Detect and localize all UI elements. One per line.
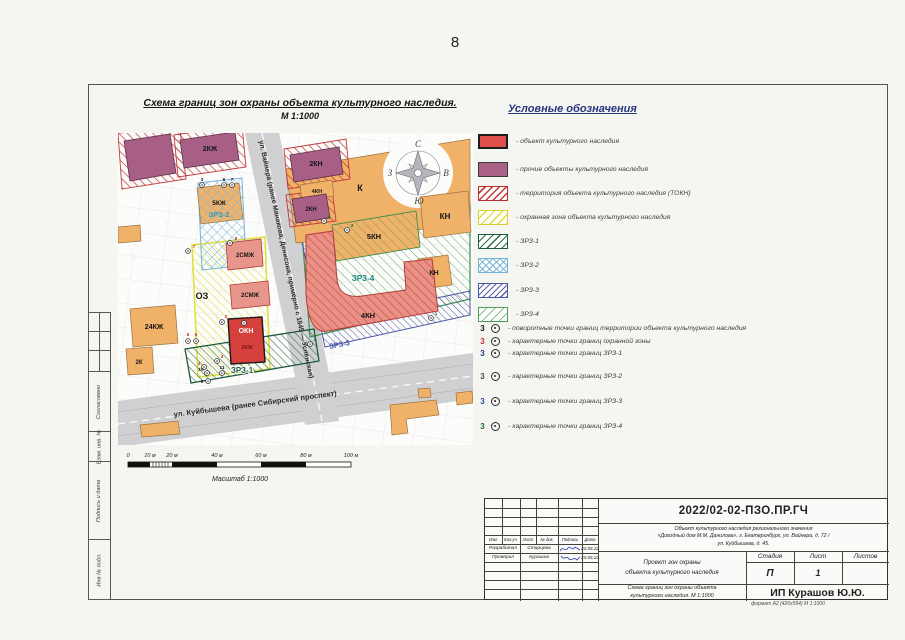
row-checker-role: Проверил <box>486 553 520 562</box>
scale-tick: 40 м <box>211 453 223 459</box>
point-num: 1 <box>435 311 438 317</box>
page-number: 8 <box>430 34 480 51</box>
swatch-other-okn <box>478 162 508 177</box>
label-24kzh: 24КЖ <box>145 324 164 331</box>
swatch-zrz3 <box>478 283 508 298</box>
point-num: 8 <box>235 236 238 242</box>
scale-bar-segments <box>128 462 351 467</box>
legend-label: - ЗРЗ-3 <box>516 287 539 294</box>
strip-box <box>99 312 111 332</box>
project-name: Проект зон охраны объекта культурного на… <box>598 551 746 584</box>
point-num: 10 <box>198 367 204 373</box>
label-zrz4: ЗРЗ-4 <box>352 274 375 283</box>
legend-label: - характерные точки границ ЗРЗ-3 <box>508 398 622 405</box>
swatch-okn <box>478 134 508 149</box>
document-number: 2022/02-02-ПЗО.ПР.ГЧ <box>598 499 889 523</box>
compass-west-label: З <box>388 168 393 178</box>
point-sample-number: 3 <box>478 324 487 333</box>
legend-item-zrz4: - ЗРЗ-4 <box>478 307 539 322</box>
point-num: 5 <box>187 332 190 338</box>
map-title: Схема границ зон охраны объекта культурн… <box>140 97 460 109</box>
label-5kzh: 5КЖ <box>212 200 226 207</box>
legend-point-tokn: 3 - поворотные точки границ территории о… <box>478 324 746 333</box>
legend-item-zrz3: - ЗРЗ-3 <box>478 283 539 298</box>
legend-label: - ЗРЗ-2 <box>516 262 539 269</box>
strip-cell-inv: Инв.№ подл. <box>88 539 111 600</box>
project-line: Проект зон охраны <box>625 558 718 567</box>
strip-cell-vzam: Взам. инв. № <box>88 431 111 462</box>
legend-point-zrz4: 3 - характерные точки границ ЗРЗ-4 <box>478 422 622 431</box>
legend-label: - характерные точки границ охранной зоны <box>508 338 651 345</box>
scale-tick: 100 м <box>344 453 359 459</box>
legend-label: - ЗРЗ-4 <box>516 311 539 318</box>
building-corner-heritage <box>124 134 176 181</box>
site-plan-map: С З В Ю 2КЖ <box>118 133 473 445</box>
scale-tick: 60 м <box>255 453 267 459</box>
swatch-zrz1 <box>478 234 508 249</box>
legend-label: - характерные точки границ ЗРЗ-2 <box>508 373 622 380</box>
legend-item-zrz1: - ЗРЗ-1 <box>478 234 539 249</box>
label-okn-sub: 2КЖ <box>241 345 252 351</box>
sheets-label: Листов <box>842 551 889 562</box>
col-ndok: № док. <box>536 535 558 544</box>
legend-label: - ЗРЗ-1 <box>516 238 539 245</box>
project-line: объекта культурного наследия <box>625 568 718 577</box>
signature-stroke <box>559 554 581 562</box>
strip-cell-soglasovano: Согласовано <box>88 371 111 432</box>
label-2smzh-2: 2СМЖ <box>241 293 260 299</box>
row-developer-name: Старцева <box>520 544 558 553</box>
strip-cell-podpis: Подпись и дата <box>88 461 111 540</box>
label-kn-right: КН <box>440 212 451 221</box>
point-num: 7 <box>193 244 196 250</box>
scale-tick: 20 м <box>165 453 178 459</box>
point-num: 6 <box>223 177 226 183</box>
label-zrz1: ЗРЗ-1 <box>231 366 254 375</box>
strip-box <box>99 331 111 351</box>
strip-label: Инв.№ подл. <box>97 553 103 586</box>
legend-point-zrz1: 3 - характерные точки границ ЗРЗ-1 <box>478 349 622 358</box>
legend-point-guard: 3 - характерные точки границ охранной зо… <box>478 337 651 346</box>
point-marker-icon <box>491 324 500 333</box>
drawing-line: Схема границ зон охраны объекта <box>628 585 717 593</box>
scale-tick: 80 м <box>300 453 312 459</box>
point-sample-number: 3 <box>478 422 487 431</box>
point-sample-number: 3 <box>478 349 487 358</box>
label-2k: 2К <box>136 360 143 366</box>
scale-bar: 0 10 м 20 м 40 м 60 м 80 м 100 м Масштаб… <box>125 448 365 490</box>
strip-box <box>99 350 111 372</box>
legend-point-zrz3: 3 - характерные точки границ ЗРЗ-3 <box>478 397 622 406</box>
signature-startseva <box>558 544 582 553</box>
legend-item-zrz2: - ЗРЗ-2 <box>478 258 539 273</box>
legend-label: - охранная зона объекта культурного насл… <box>516 214 670 221</box>
map-scale-note: М 1:1000 <box>140 111 460 121</box>
point-marker-icon <box>491 349 500 358</box>
object-description: Объект культурного наследия региональног… <box>598 523 889 551</box>
object-line: «Доходный дом М.М. Данилова», г. Екатери… <box>658 533 830 541</box>
label-4kn-big: 4КН <box>361 311 375 320</box>
strip-label: Подпись и дата <box>97 479 103 521</box>
label-2kn-1: 2КН <box>309 161 322 168</box>
point-num: 2 <box>225 314 228 320</box>
legend-label: - характерные точки границ ЗРЗ-1 <box>508 350 622 357</box>
label-2smzh-1: 2СМЖ <box>236 253 255 259</box>
swatch-zrz4 <box>478 307 508 322</box>
legend-point-zrz2: 3 - характерные точки границ ЗРЗ-2 <box>478 372 622 381</box>
swatch-zrz2 <box>478 258 508 273</box>
col-izm: Изм. <box>485 535 502 544</box>
legend-label: - поворотные точки границ территории объ… <box>508 325 746 332</box>
point-marker-icon <box>491 397 500 406</box>
point-num: 3 <box>351 223 354 229</box>
point-num: 9 <box>201 379 204 385</box>
point-num: 6 <box>195 332 198 338</box>
point-marker-icon <box>491 372 500 381</box>
label-k: К <box>357 183 363 193</box>
point-num: 4 <box>328 214 331 220</box>
compass-north-label: С <box>415 139 422 149</box>
col-podpis: Подпись <box>558 535 582 544</box>
legend-title: Условные обозначения <box>508 103 637 115</box>
scanned-sheet: { "page": { "number": "8", "format_note"… <box>0 0 905 640</box>
drawing-line: культурного наследия. М 1:1000 <box>628 593 717 601</box>
legend-label: - характерные точки границ ЗРЗ-4 <box>508 423 622 430</box>
building-left-small <box>118 225 141 243</box>
swatch-guard-zone <box>478 210 508 225</box>
legend-label: - прочие объекты культурного наследия <box>516 166 648 173</box>
point-num: 3 <box>221 354 224 360</box>
stage-label: Стадия <box>746 551 794 562</box>
col-list: Лист <box>520 535 536 544</box>
point-sample-number: 3 <box>478 397 487 406</box>
legend-item-okn: - объект культурного наследия <box>478 134 619 149</box>
stage-value: П <box>746 562 794 584</box>
label-zrz2: ЗРЗ-2 <box>209 210 230 219</box>
signature-kurashov <box>558 553 582 562</box>
sheet-label: Лист <box>794 551 842 562</box>
object-line: ул. Куйбышева, д. 45. <box>658 541 830 549</box>
point-num: 4 <box>198 361 201 367</box>
point-num: 1 <box>248 316 251 322</box>
label-2kzh: 2КЖ <box>203 146 218 153</box>
legend-item-tokn: - территория объекта культурного наследи… <box>478 186 691 201</box>
swatch-tokn <box>478 186 508 201</box>
col-koluch: Кол.уч. <box>502 535 520 544</box>
point-marker-icon <box>491 337 500 346</box>
label-4kn-top: 4КН <box>312 189 322 195</box>
drawing-name: Схема границ зон охраны объекта культурн… <box>598 584 746 601</box>
signature-stroke <box>559 545 581 553</box>
strip-label: Согласовано <box>97 384 103 418</box>
title-block: Изм. Кол.уч. Лист № док. Подпись Дата Ра… <box>484 498 888 600</box>
label-2kn-2: 2КН <box>305 207 316 213</box>
col-data: Дата <box>582 535 598 544</box>
row-developer-date: 23.05.22 <box>582 544 598 553</box>
point-num: 3 <box>201 177 204 183</box>
sheet-value: 1 <box>794 562 842 584</box>
point-num: 2 <box>314 337 317 343</box>
format-note: формат А2 (420х594) М 1:1000 <box>690 601 886 607</box>
legend-item-other: - прочие объекты культурного наследия <box>478 162 648 177</box>
row-developer-role: Разработал <box>486 544 520 553</box>
label-kn-mid: КН <box>429 270 438 277</box>
legend-label: - объект культурного наследия <box>516 138 619 145</box>
company-name: ИП Курашов Ю.Ю. <box>746 584 889 601</box>
compass-south-label: Ю <box>413 196 424 206</box>
point-num: 11 <box>219 365 224 371</box>
scale-tick: 0 <box>126 453 130 459</box>
compass-east-label: В <box>443 168 449 178</box>
legend-label: - территория объекта культурного наследи… <box>516 190 691 197</box>
label-okn: ОКН <box>239 328 254 335</box>
point-sample-number: 3 <box>478 337 487 346</box>
scale-tick: 10 м <box>144 453 156 459</box>
point-sample-number: 3 <box>478 372 487 381</box>
row-checker-name: Курашов <box>520 553 558 562</box>
row-checker-date: 23.05.22 <box>582 553 598 562</box>
scale-caption: Масштаб 1:1000 <box>212 475 268 483</box>
label-5kn: 5КН <box>367 232 381 241</box>
strip-label: Взам. инв. № <box>97 429 103 464</box>
point-marker-icon <box>491 422 500 431</box>
legend-item-guard-zone: - охранная зона объекта культурного насл… <box>478 210 670 225</box>
label-oz: ОЗ <box>196 291 209 301</box>
point-num: 7 <box>231 177 234 183</box>
